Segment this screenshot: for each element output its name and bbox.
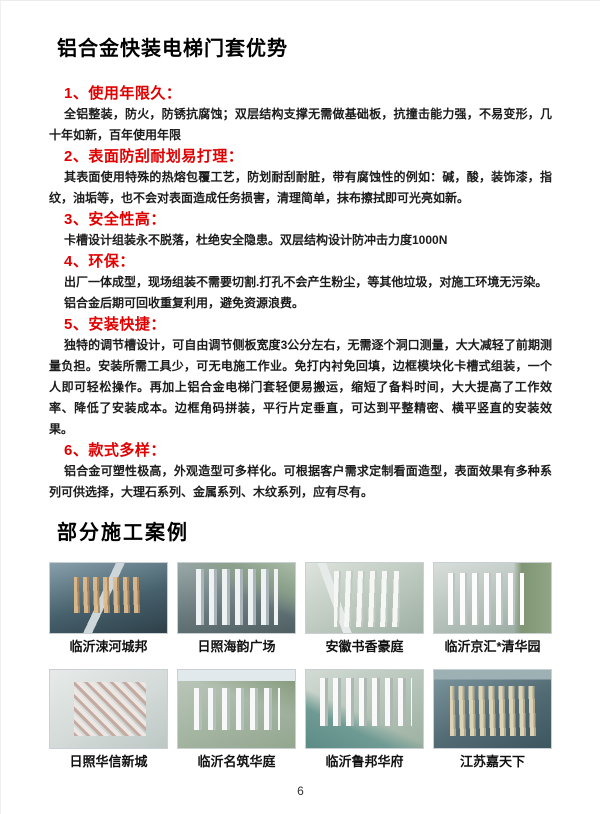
section-heading: 6、款式多样：	[49, 440, 552, 461]
case-card: 临沂涑河城邦	[49, 562, 168, 656]
advantage-section-5: 5、安装快捷： 独特的调节槽设计，可自由调节侧板宽度3公分左右，无需逐个洞口测量…	[49, 314, 552, 440]
section-paragraph: 其表面使用特殊的热熔包覆工艺，防划耐刮耐脏，带有腐蚀性的例如：碱，酸，装饰漆，指…	[49, 167, 552, 209]
page-title: 铝合金快装电梯门套优势	[57, 37, 552, 61]
case-photo-aerial-render	[305, 562, 424, 634]
case-card: 江苏嘉天下	[433, 669, 552, 771]
advantage-section-2: 2、表面防刮耐划易打理： 其表面使用特殊的热熔包覆工艺，防划耐刮耐脏，带有腐蚀性…	[49, 146, 552, 209]
case-photo-aerial-render	[49, 669, 168, 749]
case-photo-aerial-render	[305, 669, 424, 749]
case-caption: 安徽书香豪庭	[305, 638, 424, 656]
section-paragraph: 全铝整装，防火，防锈抗腐蚀；双层结构支撑无需做基础板，抗撞击能力强，不易变形，几…	[49, 104, 552, 146]
case-card: 临沂京汇*清华园	[433, 562, 552, 656]
section-paragraph: 独特的调节槽设计，可自由调节侧板宽度3公分左右，无需逐个洞口测量，大大减轻了前期…	[49, 335, 552, 440]
section-paragraph: 铝合金后期可回收重复利用，避免资源浪费。	[49, 293, 552, 314]
section-paragraph: 铝合金可塑性极高，外观造型可多样化。可根据客户需求定制看面造型，表面效果有多种系…	[49, 461, 552, 503]
advantage-section-3: 3、安全性高： 卡槽设计组装永不脱落，杜绝安全隐患。双层结构设计防冲击力度100…	[49, 209, 552, 251]
section-paragraph: 出厂一体成型，现场组装不需要切割.打孔不会产生粉尘，等其他垃圾，对施工环境无污染…	[49, 272, 552, 293]
case-caption: 江苏嘉天下	[433, 753, 552, 771]
case-card: 日照华信新城	[49, 669, 168, 771]
advantage-section-6: 6、款式多样： 铝合金可塑性极高，外观造型可多样化。可根据客户需求定制看面造型，…	[49, 440, 552, 503]
case-card: 临沂名筑华庭	[177, 669, 296, 771]
case-caption: 日照华信新城	[49, 753, 168, 771]
section-paragraph: 卡槽设计组装永不脱落，杜绝安全隐患。双层结构设计防冲击力度1000N	[49, 230, 552, 251]
case-caption: 临沂京汇*清华园	[433, 638, 552, 656]
cases-heading: 部分施工案例	[57, 521, 552, 545]
case-photo-aerial-render	[49, 562, 168, 634]
section-heading: 5、安装快捷：	[49, 314, 552, 335]
case-photo-aerial-render	[433, 562, 552, 634]
section-heading: 4、环保：	[49, 251, 552, 272]
case-photo-aerial-render	[177, 669, 296, 749]
case-photo-aerial-render	[177, 562, 296, 634]
case-photo-aerial-render	[433, 669, 552, 749]
section-heading: 2、表面防刮耐划易打理：	[49, 146, 552, 167]
section-heading: 1、使用年限久：	[49, 83, 552, 104]
advantage-section-1: 1、使用年限久： 全铝整装，防火，防锈抗腐蚀；双层结构支撑无需做基础板，抗撞击能…	[49, 83, 552, 146]
case-card: 临沂鲁邦华府	[305, 669, 424, 771]
case-caption: 日照海韵广场	[177, 638, 296, 656]
section-heading: 3、安全性高：	[49, 209, 552, 230]
case-caption: 临沂名筑华庭	[177, 753, 296, 771]
case-card: 日照海韵广场	[177, 562, 296, 656]
document-page: 铝合金快装电梯门套优势 1、使用年限久： 全铝整装，防火，防锈抗腐蚀；双层结构支…	[0, 0, 600, 814]
page-number: 6	[1, 784, 600, 798]
case-grid: 临沂涑河城邦 日照海韵广场 安徽书香豪庭 临沂京汇*清华园 日照华信新城 临沂名…	[49, 562, 552, 771]
advantage-section-4: 4、环保： 出厂一体成型，现场组装不需要切割.打孔不会产生粉尘，等其他垃圾，对施…	[49, 251, 552, 314]
case-caption: 临沂涑河城邦	[49, 638, 168, 656]
advantages-list: 1、使用年限久： 全铝整装，防火，防锈抗腐蚀；双层结构支撑无需做基础板，抗撞击能…	[49, 83, 552, 503]
case-caption: 临沂鲁邦华府	[305, 753, 424, 771]
case-card: 安徽书香豪庭	[305, 562, 424, 656]
